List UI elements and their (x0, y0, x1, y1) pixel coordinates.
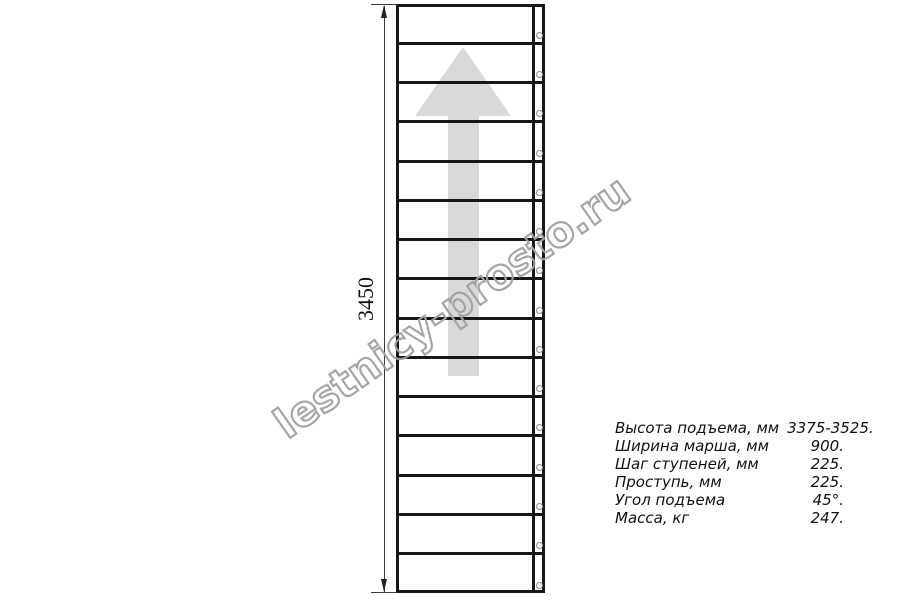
spec-label: Угол подъема (615, 491, 725, 509)
step-edge-line (396, 42, 545, 45)
mount-hole (536, 189, 543, 196)
spec-label: Ширина марша, мм (615, 437, 769, 455)
spec-row: Ширина марша, мм900. (615, 437, 844, 455)
spec-label: Высота подъема, мм (615, 419, 779, 437)
spec-row: Масса, кг247. (615, 509, 844, 527)
mount-hole (536, 110, 543, 117)
step-edge-line (396, 434, 545, 437)
spec-row: Шаг ступеней, мм225. (615, 455, 844, 473)
dimension-label: 3450 (353, 277, 379, 321)
spec-value: 3375-3525. (787, 419, 874, 437)
step-edge-line (396, 199, 545, 202)
spec-value: 225. (811, 455, 844, 473)
spec-row: Проступь, мм225. (615, 473, 844, 491)
spec-row: Высота подъема, мм3375-3525. (615, 419, 844, 437)
spec-label: Шаг ступеней, мм (615, 455, 759, 473)
mount-hole (536, 424, 543, 431)
spec-value: 247. (811, 509, 844, 527)
dimension-arrowhead-bottom-icon (381, 579, 387, 592)
step-edge-line (396, 552, 545, 555)
mount-hole (536, 71, 543, 78)
mount-hole (536, 582, 543, 589)
step-edge-line (396, 474, 545, 477)
step-edge-line (396, 81, 545, 84)
dimension-arrowhead-top-icon (381, 5, 387, 18)
spec-value: 45°. (813, 491, 844, 509)
mount-hole (536, 32, 543, 39)
step-edge-line (396, 513, 545, 516)
mount-hole (536, 307, 543, 314)
spec-value: 225. (811, 473, 844, 491)
mount-hole (536, 542, 543, 549)
mount-hole (536, 346, 543, 353)
dimension-extension-line-bottom (371, 592, 397, 593)
stringer-line (532, 4, 535, 593)
spec-value: 900. (811, 437, 844, 455)
staircase-plan-drawing: 3450 lestnicy-prosto.ru Высота подъема, … (0, 0, 900, 600)
mount-hole (536, 464, 543, 471)
mount-hole (536, 385, 543, 392)
step-edge-line (396, 395, 545, 398)
spec-label: Проступь, мм (615, 473, 722, 491)
spec-table: Высота подъема, мм3375-3525.Ширина марша… (615, 419, 844, 527)
step-edge-line (396, 120, 545, 123)
step-edge-line (396, 160, 545, 163)
dimension-line (384, 6, 385, 592)
mount-hole (536, 503, 543, 510)
spec-row: Угол подъема45°. (615, 491, 844, 509)
mount-hole (536, 150, 543, 157)
spec-label: Масса, кг (615, 509, 689, 527)
